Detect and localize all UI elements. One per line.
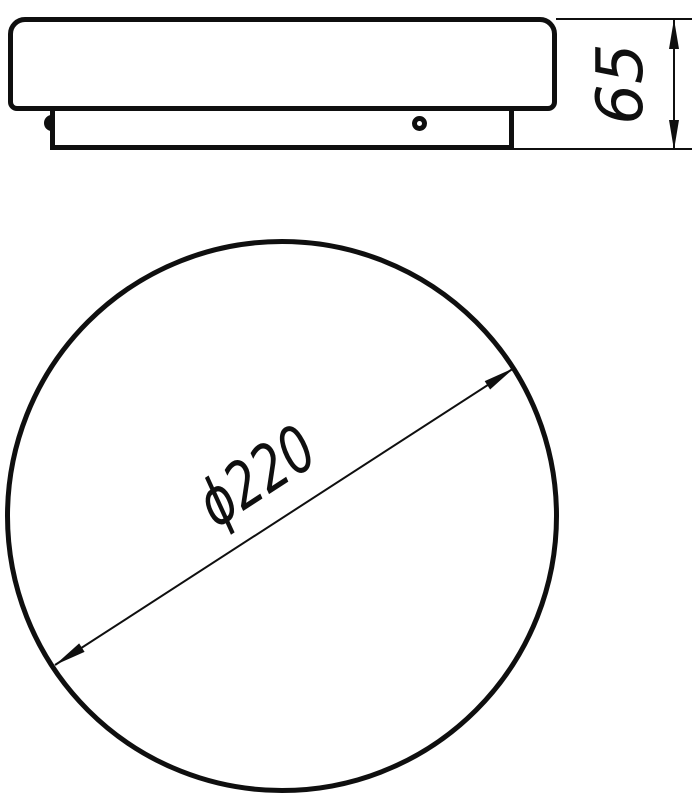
lamp-shade-outline: [8, 17, 557, 111]
extension-line-bottom: [514, 148, 692, 150]
height-dimension-label: 65: [589, 43, 653, 124]
lamp-base-outline: [50, 106, 514, 150]
screw-hole-center: [417, 121, 422, 126]
arrowhead-up-icon: [669, 19, 679, 49]
technical-drawing-canvas: 65 ϕ220: [0, 0, 697, 800]
arrowhead-down-icon: [669, 120, 679, 150]
